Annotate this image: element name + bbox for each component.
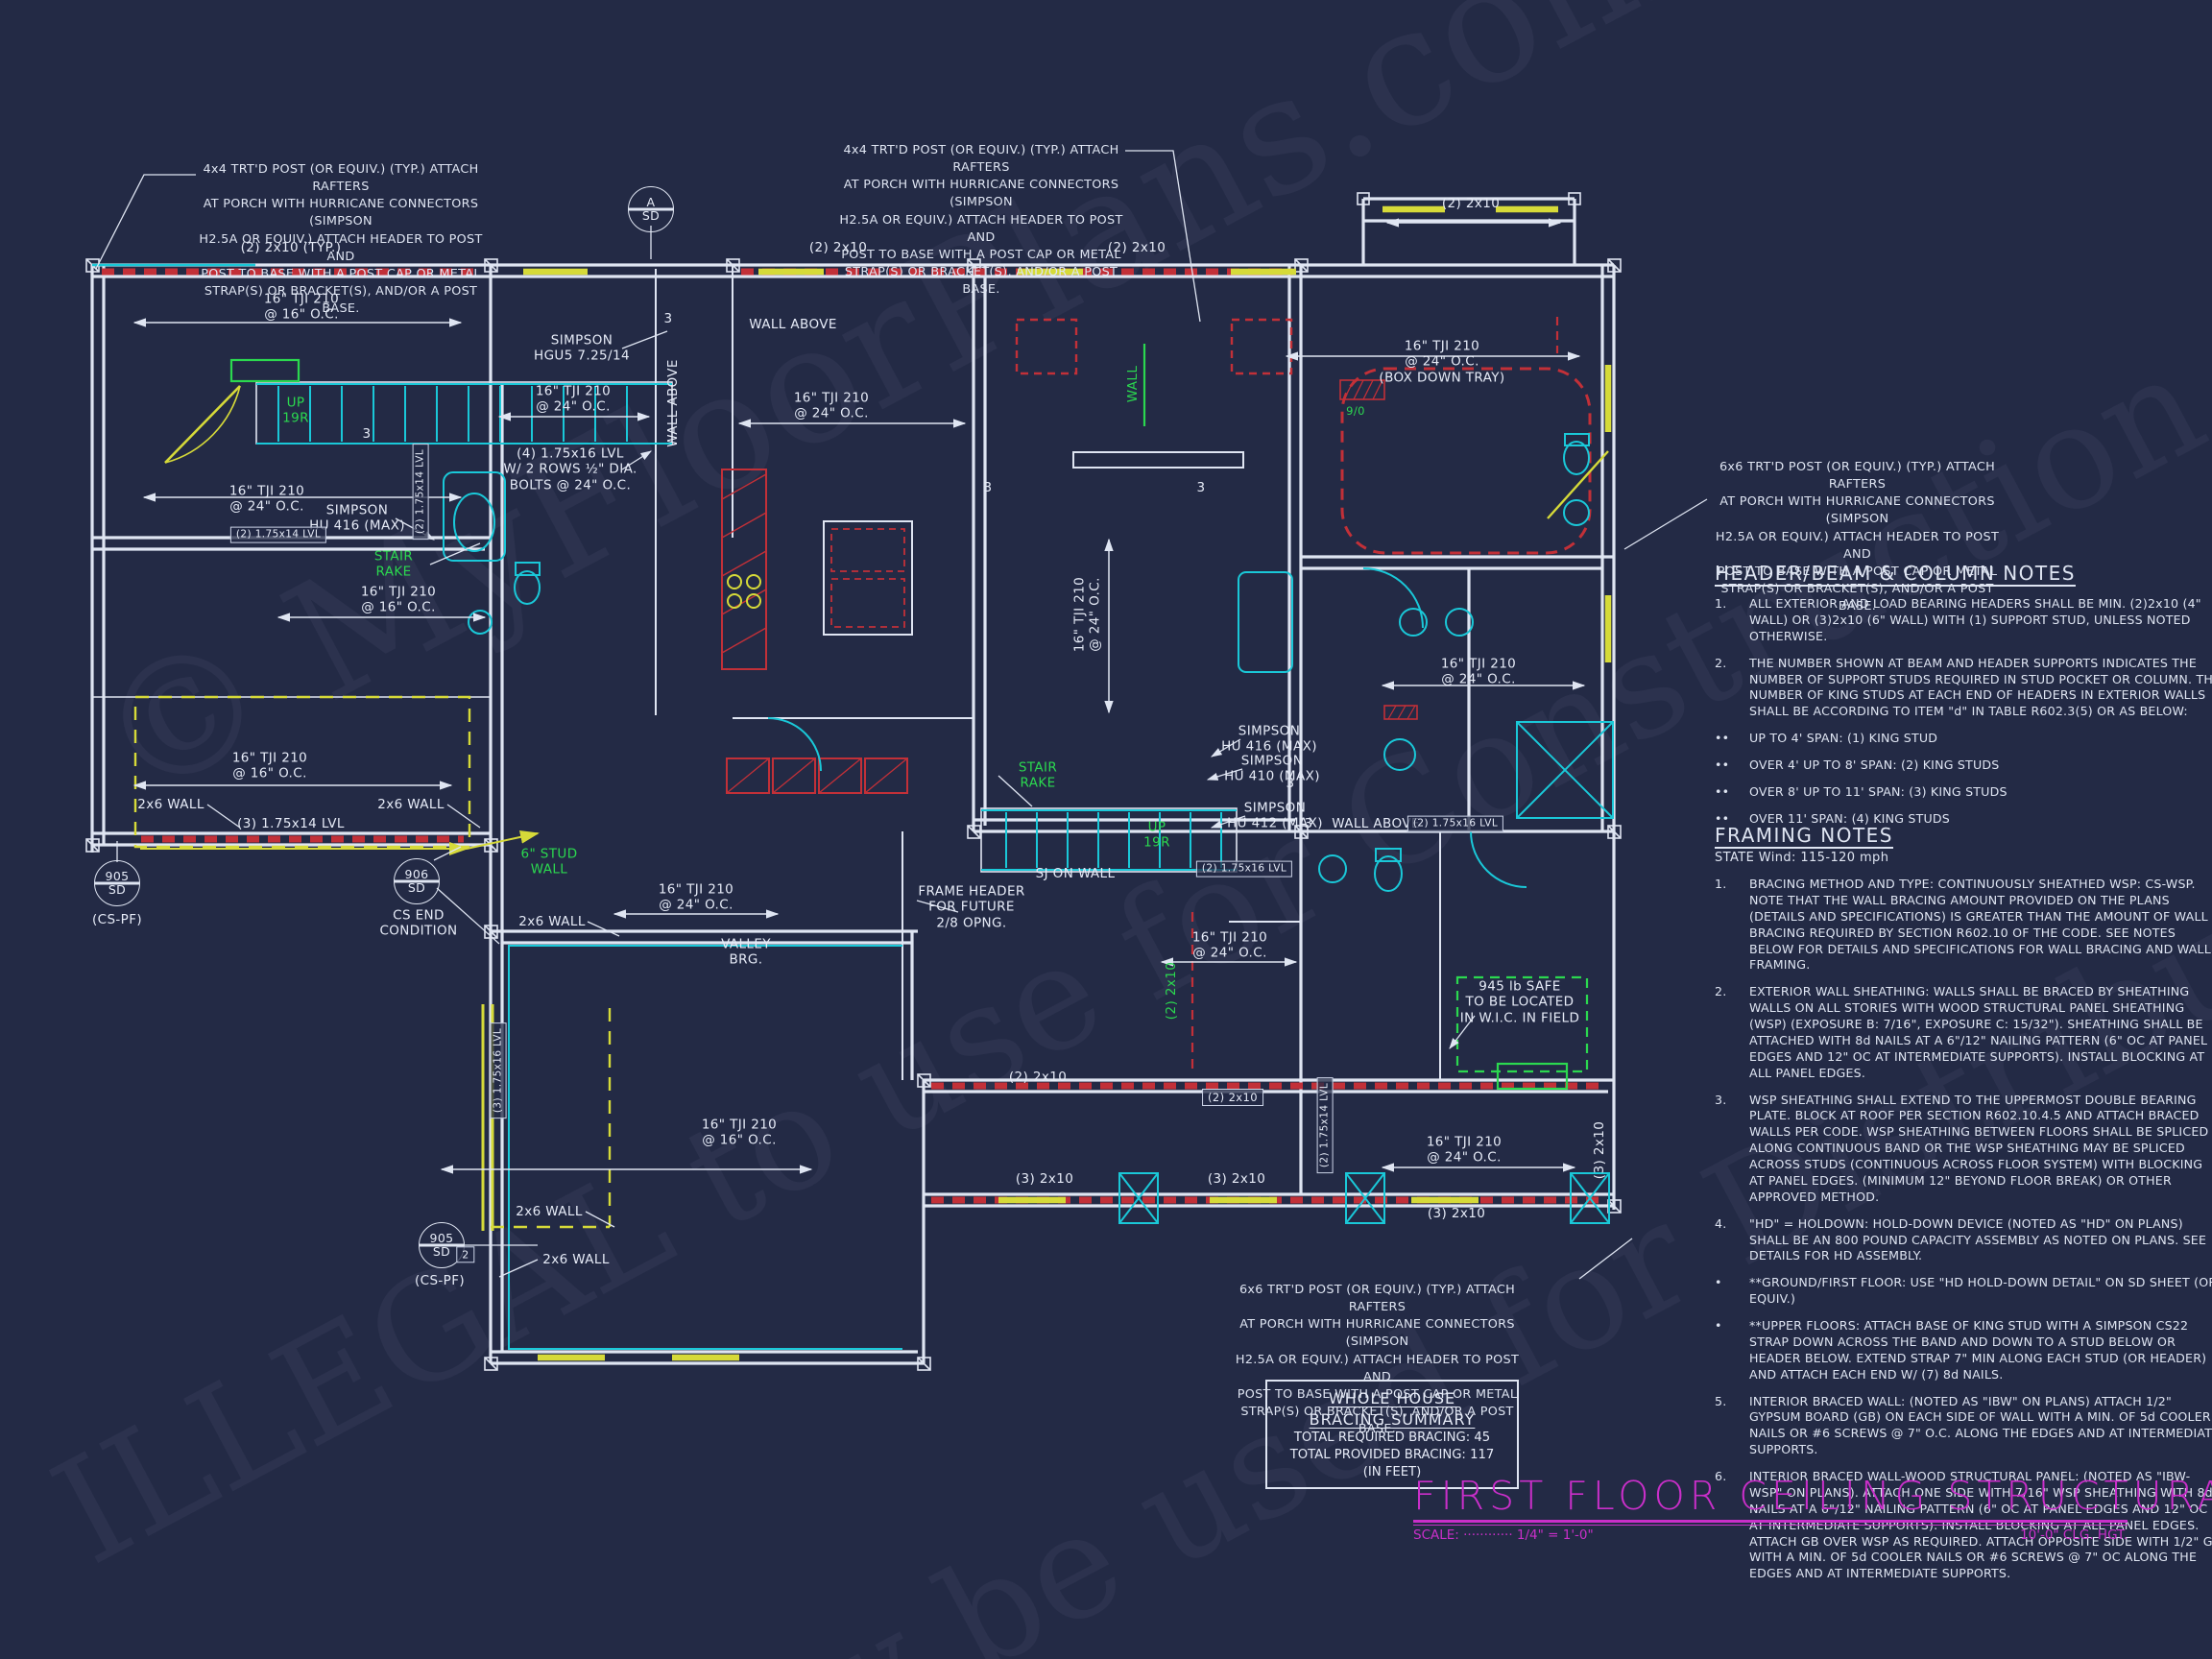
bracing-provided: TOTAL PROVIDED BRACING: 117: [1271, 1447, 1513, 1464]
note-item: 4."HD" = HOLDOWN: HOLD-DOWN DEVICE (NOTE…: [1715, 1216, 2212, 1265]
plan-label: (2) 1.75x16 LVL: [1196, 861, 1292, 878]
note-item: 1.ALL EXTERIOR AND LOAD BEARING HEADERS …: [1715, 596, 2212, 645]
plan-label: (2) 2x10: [1442, 196, 1500, 211]
plan-label: (CS-PF): [415, 1273, 465, 1288]
plan-label: 16" TJI 210 @ 24" O.C.: [659, 882, 733, 914]
note-item: 5.INTERIOR BRACED WALL: (NOTED AS "IBW" …: [1715, 1394, 2212, 1459]
plan-label: CS END CONDITION: [379, 908, 457, 940]
plan-label: WALL ABOVE: [749, 317, 837, 332]
plan-label: WALL ABOVE: [665, 359, 681, 447]
plan-label: 945 lb SAFE TO BE LOCATED IN W.I.C. IN F…: [1460, 978, 1580, 1025]
plan-label: STAIR RAKE: [374, 549, 413, 581]
note-number: 2.: [1715, 984, 1749, 1081]
plan-label: 16" TJI 210 @ 24" O.C.: [794, 391, 869, 422]
plan-label: SIMPSON HGU5 7.25/14: [534, 333, 630, 365]
plan-label: VALLEY BRG.: [721, 937, 771, 969]
note-text: ALL EXTERIOR AND LOAD BEARING HEADERS SH…: [1749, 596, 2212, 645]
note-text: "HD" = HOLDOWN: HOLD-DOWN DEVICE (NOTED …: [1749, 1216, 2212, 1265]
note-number: 1.: [1715, 596, 1749, 645]
plan-label: 16" TJI 210 @ 16" O.C.: [232, 751, 307, 782]
plan-label: (4) 1.75x16 LVL W/ 2 ROWS ½" DIA. BOLTS …: [503, 445, 637, 493]
note-item: ••OVER 4' UP TO 8' SPAN: (2) KING STUDS: [1715, 757, 2212, 774]
plan-label: 2x6 WALL: [137, 797, 204, 812]
plan-label: (2) 1.75x16 LVL: [1407, 816, 1503, 832]
plan-label: (2) 2x10: [1164, 962, 1179, 1020]
note-text: UP TO 4' SPAN: (1) KING STUD: [1749, 731, 2212, 747]
plan-label: 3: [1305, 816, 1313, 831]
bracing-required: TOTAL REQUIRED BRACING: 45: [1271, 1430, 1513, 1447]
plan-label: 3: [1286, 776, 1295, 791]
plan-label: STAIR RAKE: [1019, 760, 1057, 792]
note-item: 2.THE NUMBER SHOWN AT BEAM AND HEADER SU…: [1715, 656, 2212, 721]
note-number: 3.: [1715, 1093, 1749, 1206]
plan-label: 9/0: [1346, 404, 1365, 418]
plan-label: SIMPSON HU 416 (MAX): [1221, 724, 1317, 756]
plan-label: 3: [984, 480, 993, 495]
bracing-summary-title-2: BRACING SUMMARY: [1271, 1409, 1513, 1431]
note-text: WSP SHEATHING SHALL EXTEND TO THE UPPERM…: [1749, 1093, 2212, 1206]
note-number: ••: [1715, 731, 1749, 747]
plan-label: 905 SD: [94, 860, 140, 906]
note-item: •**UPPER FLOORS: ATTACH BASE OF KING STU…: [1715, 1318, 2212, 1383]
plan-label: SIMPSON HU 410 (MAX): [1224, 754, 1320, 785]
plan-label: 16" TJI 210 @ 24" O.C.: [1427, 1135, 1502, 1166]
plan-label: 3: [363, 426, 372, 442]
plan-label: (3) 1.75x16 LVL: [491, 1022, 507, 1118]
floor-plan-canvas: © MyFloorPlans.comILLEGAL to use for Con…: [0, 0, 2212, 1659]
note-text: **GROUND/FIRST FLOOR: USE "HD HOLD-DOWN …: [1749, 1275, 2212, 1308]
plan-label: 3: [664, 311, 673, 326]
note-text: INTERIOR BRACED WALL: (NOTED AS "IBW" ON…: [1749, 1394, 2212, 1459]
plan-label: 2x6 WALL: [377, 797, 445, 812]
note-item: 2.EXTERIOR WALL SHEATHING: WALLS SHALL B…: [1715, 984, 2212, 1081]
plan-label: 3: [1197, 480, 1206, 495]
note-text: OVER 4' UP TO 8' SPAN: (2) KING STUDS: [1749, 757, 2212, 774]
plan-label: (2) 1.75x14 LVL: [230, 527, 326, 543]
plan-label: UP 19R: [282, 396, 309, 427]
note-number: ••: [1715, 784, 1749, 801]
plan-label: 2: [456, 1246, 474, 1262]
plan-label: 2x6 WALL: [542, 1252, 610, 1267]
post-note-top-left: 4x4 TRT'D POST (OR EQUIV.) (TYP.) ATTACH…: [192, 161, 490, 318]
post-note-top-center: 4x4 TRT'D POST (OR EQUIV.) (TYP.) ATTACH…: [837, 142, 1125, 299]
note-text: OVER 8' UP TO 11' SPAN: (3) KING STUDS: [1749, 784, 2212, 801]
note-text: EXTERIOR WALL SHEATHING: WALLS SHALL BE …: [1749, 984, 2212, 1081]
plan-label: FRAME HEADER FOR FUTURE 2/8 OPNG.: [918, 883, 1024, 930]
note-number: •: [1715, 1275, 1749, 1308]
plan-label: (2) 2x10: [1202, 1089, 1263, 1106]
plan-label: 16" TJI 210 @ 24" O.C.: [536, 384, 611, 416]
plan-label: (2) 1.75x14 LVL: [413, 444, 429, 540]
header-beam-column-notes: HEADER/BEAM & COLUMN NOTES 1.ALL EXTERIO…: [1715, 562, 2212, 838]
plan-label: (2) 1.75x14 LVL: [1317, 1077, 1334, 1173]
plan-label: SJ ON WALL: [1036, 866, 1116, 881]
framing-notes-subheading: STATE Wind: 115-120 mph: [1715, 851, 2212, 865]
plan-label: 2x6 WALL: [516, 1204, 583, 1219]
plan-label: 16" TJI 210 @ 24" O.C.: [229, 484, 304, 516]
note-number: 1.: [1715, 877, 1749, 974]
plan-label: (3) 2x10: [1428, 1206, 1485, 1221]
note-item: •**GROUND/FIRST FLOOR: USE "HD HOLD-DOWN…: [1715, 1275, 2212, 1308]
sheet-title: FIRST FLOOR CEILING STRUCTURAL PLAN: [1413, 1473, 2128, 1523]
plan-label: (3) 2x10: [1016, 1171, 1073, 1187]
note-number: 4.: [1715, 1216, 1749, 1265]
plan-label: 16" TJI 210 @ 24" O.C.: [1072, 577, 1104, 652]
note-number: 2.: [1715, 656, 1749, 721]
plan-label: 6" STUD WALL: [521, 847, 578, 878]
note-item: 1.BRACING METHOD AND TYPE: CONTINUOUSLY …: [1715, 877, 2212, 974]
note-item: ••OVER 8' UP TO 11' SPAN: (3) KING STUDS: [1715, 784, 2212, 801]
note-text: **UPPER FLOORS: ATTACH BASE OF KING STUD…: [1749, 1318, 2212, 1383]
sheet-title-block: FIRST FLOOR CEILING STRUCTURAL PLAN SCAL…: [1413, 1473, 2128, 1543]
plan-label: 906 SD: [394, 858, 440, 904]
plan-label: (3) 2x10: [1208, 1171, 1265, 1187]
plan-label: 16" TJI 210 @ 16" O.C.: [702, 1118, 777, 1149]
ceiling-height: 10'-0" CLG. HGT.: [2020, 1527, 2128, 1543]
plan-label: WALL: [1125, 366, 1141, 403]
plan-label: (2) 2x10: [1009, 1070, 1067, 1085]
sheet-scale: SCALE: ············ 1/4" = 1'-0": [1413, 1527, 1594, 1543]
note-item: 3.WSP SHEATHING SHALL EXTEND TO THE UPPE…: [1715, 1093, 2212, 1206]
plan-label: (CS-PF): [92, 912, 142, 927]
plan-label: 16" TJI 210 @ 16" O.C.: [361, 585, 436, 616]
header-notes-heading: HEADER/BEAM & COLUMN NOTES: [1715, 562, 2212, 585]
note-text: THE NUMBER SHOWN AT BEAM AND HEADER SUPP…: [1749, 656, 2212, 721]
plan-label: A SD: [628, 186, 674, 232]
plan-label: 16" TJI 210 @ 24" O.C.: [1192, 930, 1267, 962]
note-text: BRACING METHOD AND TYPE: CONTINUOUSLY SH…: [1749, 877, 2212, 974]
plan-label: 16" TJI 210 @ 24" O.C.: [1441, 657, 1516, 688]
note-number: ••: [1715, 757, 1749, 774]
plan-label: (3) 2x10: [1592, 1121, 1607, 1179]
plan-label: (3) 1.75x14 LVL: [237, 816, 345, 831]
note-number: 5.: [1715, 1394, 1749, 1459]
note-item: ••UP TO 4' SPAN: (1) KING STUD: [1715, 731, 2212, 747]
plan-label: 2x6 WALL: [518, 914, 586, 929]
header-notes-list: 1.ALL EXTERIOR AND LOAD BEARING HEADERS …: [1715, 596, 2212, 828]
framing-notes-heading: FRAMING NOTES: [1715, 824, 2212, 847]
note-number: •: [1715, 1318, 1749, 1383]
bracing-summary-title-1: WHOLE HOUSE: [1271, 1388, 1513, 1409]
plan-label: 16" TJI 210 @ 24" O.C. (BOX DOWN TRAY): [1379, 338, 1504, 385]
plan-label: UP 19R: [1143, 820, 1170, 852]
